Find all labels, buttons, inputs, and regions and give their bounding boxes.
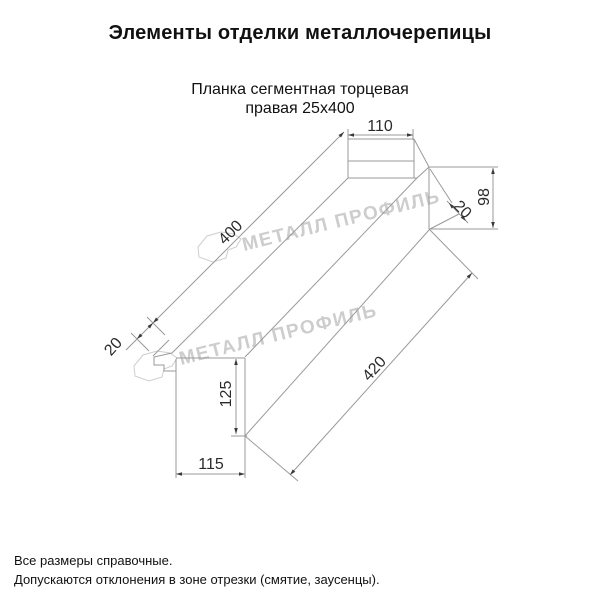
dimension-labels: 110 98 20 400 20 420 125 115 [101,118,493,473]
brand-logo-icon [134,351,177,381]
part-outline [153,139,498,436]
footer-notes: Все размеры справочные. Допускаются откл… [14,552,380,589]
dim-right-fold: 20 [450,198,475,223]
dim-top-width: 110 [367,118,393,135]
dim-left-height: 125 [218,381,235,408]
dim-bottom-length: 420 [359,353,390,384]
dim-left-fold: 20 [101,335,126,360]
watermark-text: МЕТАЛЛ ПРОФИЛЬ [240,186,443,256]
watermark-text: МЕТАЛЛ ПРОФИЛЬ [177,300,380,370]
watermark-lower: МЕТАЛЛ ПРОФИЛЬ [134,300,380,381]
technical-drawing: МЕТАЛЛ ПРОФИЛЬ МЕТАЛЛ ПРОФИЛЬ [0,0,600,600]
dim-right-height: 98 [476,188,493,206]
footer-note-1: Все размеры справочные. [14,552,380,571]
footer-note-2: Допускаются отклонения в зоне отрезки (с… [14,571,380,590]
dim-bottom-width: 115 [198,456,224,473]
dimension-arrows [137,132,495,476]
